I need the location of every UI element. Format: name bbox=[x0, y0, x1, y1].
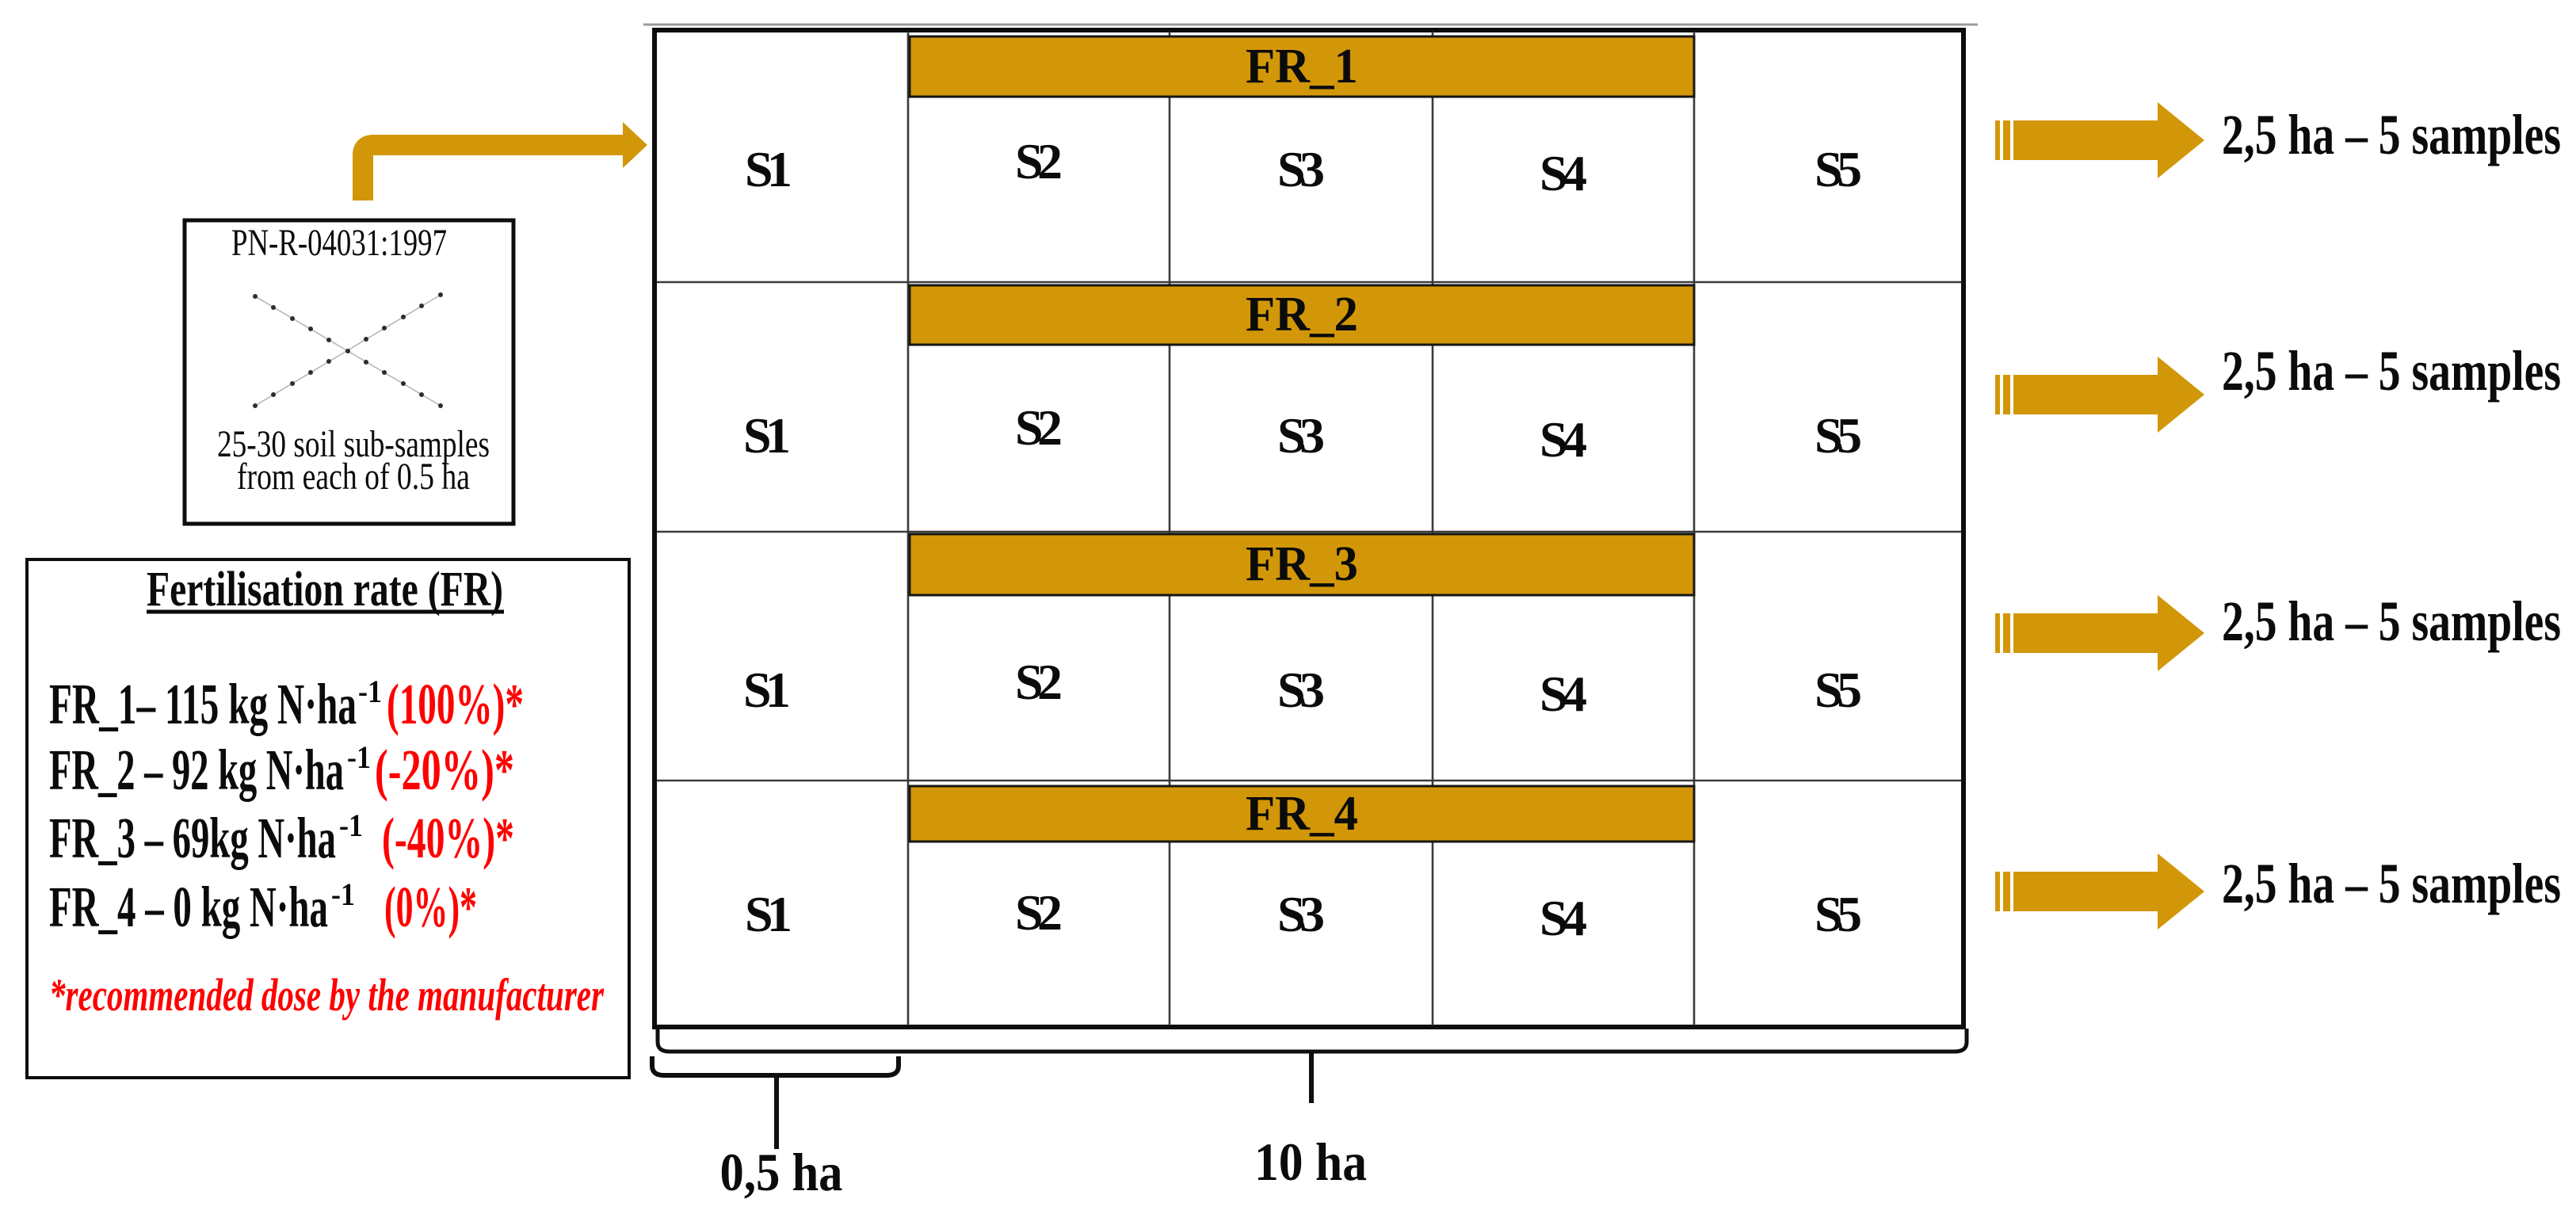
svg-text:S4: S4 bbox=[1540, 411, 1587, 468]
svg-text:FR_2 – 92 kg N·ha: FR_2 – 92 kg N·ha bbox=[49, 738, 344, 802]
svg-text:S1: S1 bbox=[743, 407, 791, 464]
svg-text:FR_4 – 0 kg N·ha: FR_4 – 0 kg N·ha bbox=[49, 875, 328, 939]
svg-text:S2: S2 bbox=[1015, 399, 1063, 456]
svg-text:2,5 ha – 5 samples: 2,5 ha – 5 samples bbox=[2222, 339, 2561, 403]
svg-text:S5: S5 bbox=[1815, 407, 1862, 464]
svg-text:S4: S4 bbox=[1540, 145, 1587, 201]
svg-text:FR_3: FR_3 bbox=[1246, 537, 1358, 591]
svg-text:S2: S2 bbox=[1015, 654, 1063, 710]
svg-text:(-40%)*: (-40%)* bbox=[382, 806, 514, 870]
svg-text:S3: S3 bbox=[1277, 662, 1325, 718]
svg-text:S1: S1 bbox=[743, 662, 791, 718]
svg-text:(100%)*: (100%)* bbox=[387, 672, 524, 736]
svg-text:S2: S2 bbox=[1015, 133, 1063, 189]
svg-text:PN-R-04031:1997: PN-R-04031:1997 bbox=[231, 222, 447, 264]
svg-text:S5: S5 bbox=[1815, 886, 1862, 942]
svg-text:S3: S3 bbox=[1277, 141, 1325, 197]
svg-text:FR_3 – 69kg N·ha: FR_3 – 69kg N·ha bbox=[49, 806, 336, 870]
svg-text:2,5 ha – 5 samples: 2,5 ha – 5 samples bbox=[2222, 852, 2561, 915]
svg-text:S1: S1 bbox=[745, 141, 792, 197]
svg-text:-1: -1 bbox=[339, 807, 363, 843]
svg-text:S5: S5 bbox=[1815, 662, 1862, 718]
svg-text:*recommended dose by the manuf: *recommended dose by the manufacturer bbox=[49, 969, 604, 1021]
svg-text:FR_1– 115 kg N·ha: FR_1– 115 kg N·ha bbox=[49, 672, 357, 736]
svg-text:S5: S5 bbox=[1815, 141, 1862, 197]
svg-text:FR_2: FR_2 bbox=[1246, 288, 1358, 342]
svg-text:10 ha: 10 ha bbox=[1254, 1132, 1367, 1192]
svg-text:(-20%)*: (-20%)* bbox=[375, 738, 514, 802]
svg-text:2,5 ha – 5 samples: 2,5 ha – 5 samples bbox=[2222, 590, 2561, 653]
svg-text:Fertilisation rate (FR): Fertilisation rate (FR) bbox=[147, 563, 503, 617]
svg-text:(0%)*: (0%)* bbox=[384, 875, 477, 939]
svg-text:0,5 ha: 0,5 ha bbox=[720, 1142, 843, 1202]
svg-text:-1: -1 bbox=[347, 739, 371, 775]
svg-text:FR_4: FR_4 bbox=[1246, 787, 1358, 841]
svg-text:-1: -1 bbox=[358, 674, 382, 709]
svg-text:S4: S4 bbox=[1540, 890, 1587, 946]
svg-text:from each of 0.5 ha: from each of 0.5 ha bbox=[237, 456, 470, 498]
svg-text:-1: -1 bbox=[331, 876, 355, 912]
svg-text:S2: S2 bbox=[1015, 884, 1063, 941]
svg-text:2,5 ha – 5 samples: 2,5 ha – 5 samples bbox=[2222, 103, 2561, 166]
svg-text:S3: S3 bbox=[1277, 407, 1325, 464]
svg-text:S3: S3 bbox=[1277, 886, 1325, 942]
svg-text:FR_1: FR_1 bbox=[1246, 40, 1358, 94]
svg-text:S1: S1 bbox=[745, 886, 792, 942]
svg-text:S4: S4 bbox=[1540, 666, 1587, 722]
